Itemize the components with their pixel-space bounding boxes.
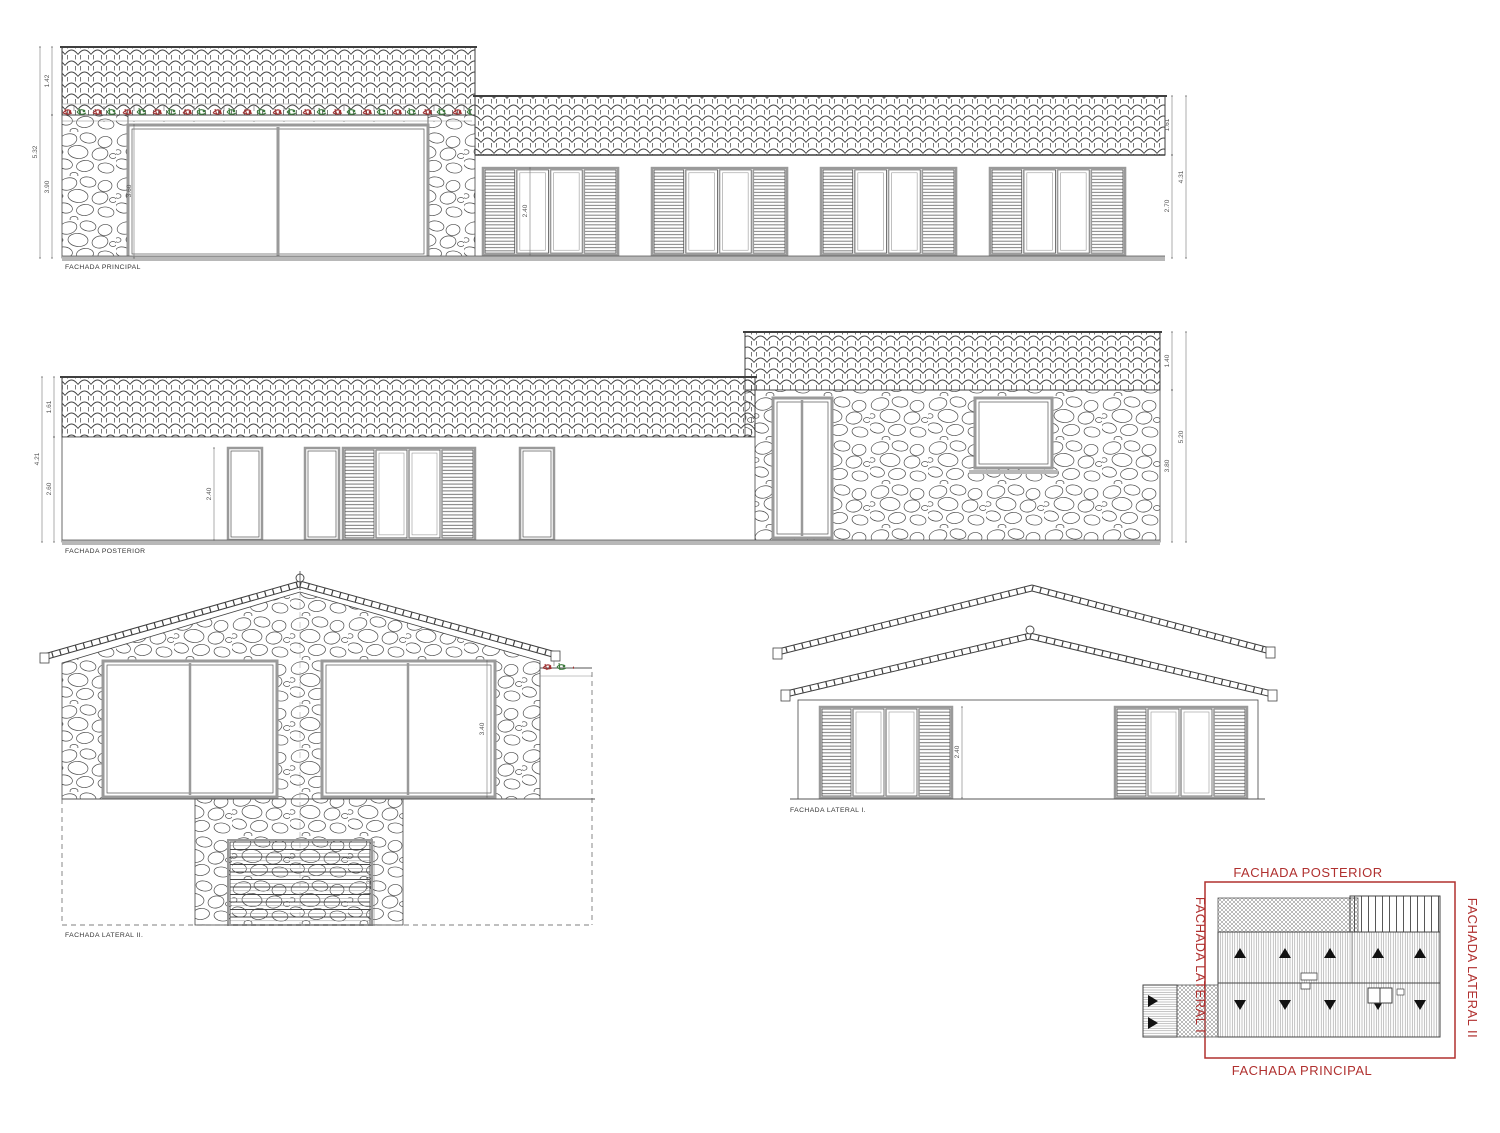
front-gable-roof [781, 633, 1277, 701]
lateral2-elevation: 3.40 2.20 FACHADA LATERAL II. [40, 571, 595, 939]
posterior-square-window [969, 398, 1058, 474]
dim-lateral2-garage: 2.20 [366, 876, 373, 889]
stone-pier-left [62, 115, 128, 258]
roof-finial-icon [1026, 626, 1034, 634]
posterior-elevation: 4.21 1.61 2.60 2.40 1.40 3.80 5.20 FACHA… [34, 332, 1186, 555]
wing-windows [483, 168, 1125, 255]
drawing-canvas: 5.32 1.42 3.90 3.60 2.40 1.61 2.70 4.31 … [0, 0, 1500, 1133]
dim-posterior-wall: 2.60 [46, 482, 53, 495]
ground-line [62, 256, 1165, 261]
rear-gable-roof [773, 585, 1275, 659]
dim-posterior-tall-roof: 1.40 [1164, 354, 1171, 367]
pergola-vegetation [536, 656, 574, 672]
posterior-label: FACHADA POSTERIOR [65, 548, 145, 555]
lateral1-label: FACHADA LATERAL I. [790, 807, 866, 814]
dim-principal-wing-window: 2.40 [522, 204, 529, 217]
dim-principal-wing-total: 4.31 [1178, 170, 1185, 183]
plan-pergola-hatch [1218, 898, 1358, 932]
lateral1-elevation: 2.40 FACHADA LATERAL I. [773, 585, 1277, 814]
principal-label: FACHADA PRINCIPAL [65, 264, 141, 271]
key-plan: FACHADA POSTERIOR FACHADA PRINCIPAL FACH… [1143, 865, 1480, 1078]
wing-roof-tiles [62, 377, 755, 437]
dim-posterior-window: 2.40 [206, 487, 213, 500]
dim-principal-roof: 1.42 [44, 74, 51, 87]
dim-posterior-roof: 1.61 [46, 400, 53, 413]
main-glass-opening [128, 125, 428, 258]
dim-principal-wall: 3.90 [44, 180, 51, 193]
key-plan-principal-label: FACHADA PRINCIPAL [1232, 1063, 1372, 1078]
dim-principal-wing-wall: 2.70 [1164, 199, 1171, 212]
stone-pier-right [428, 115, 475, 258]
plan-main-roof [1218, 932, 1440, 1037]
dim-principal-total: 5.32 [32, 145, 39, 158]
key-plan-posterior-label: FACHADA POSTERIOR [1233, 865, 1382, 880]
dim-lateral1-window: 2.40 [954, 745, 961, 758]
principal-elevation: 5.32 1.42 3.90 3.60 2.40 1.61 2.70 4.31 … [32, 47, 1186, 271]
plan-striped-roof [1350, 896, 1440, 932]
tall-roof-tiles [745, 332, 1160, 390]
dim-principal-window: 3.60 [126, 184, 133, 197]
dim-posterior-tall-total: 5.20 [1178, 430, 1185, 443]
posterior-double-door [773, 398, 832, 538]
dim-principal-wing-roof: 1.61 [1164, 118, 1171, 131]
dim-posterior-total: 4.21 [34, 452, 41, 465]
key-plan-lateral1-label: FACHADA LATERAL I [1193, 897, 1208, 1033]
dim-posterior-tall-wall: 3.80 [1164, 459, 1171, 472]
pergola-vegetation [62, 104, 472, 122]
key-plan-lateral2-label: FACHADA LATERAL II [1465, 898, 1480, 1039]
dim-lateral2-window: 3.40 [479, 722, 486, 735]
ground-line [62, 540, 1160, 545]
wing-roof-tiles [475, 96, 1165, 155]
lateral2-label: FACHADA LATERAL II. [65, 932, 143, 939]
